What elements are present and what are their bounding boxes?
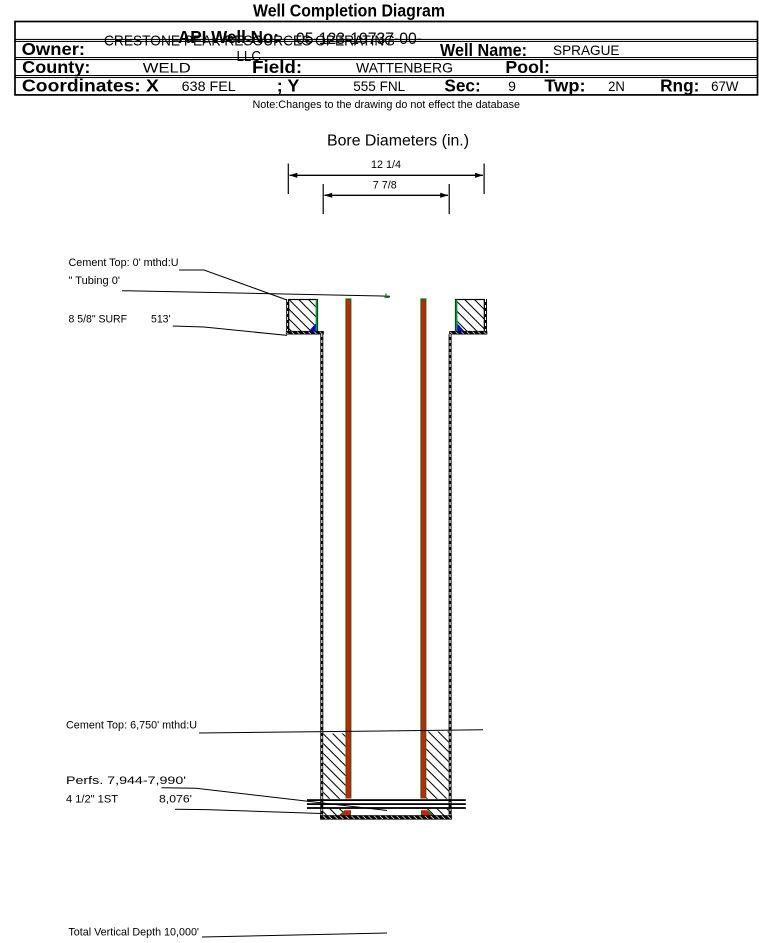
- svg-text:9: 9: [508, 78, 516, 94]
- svg-text:513': 513': [151, 313, 171, 325]
- svg-text:8,076': 8,076': [159, 793, 192, 805]
- svg-text:Owner:: Owner:: [22, 39, 85, 59]
- svg-text:WATTENBERG: WATTENBERG: [356, 59, 453, 75]
- svg-text:555 FNL: 555 FNL: [353, 78, 405, 94]
- svg-text:Pool:: Pool:: [505, 57, 550, 77]
- svg-text:WELD: WELD: [143, 59, 191, 75]
- svg-text:Note:Changes to the drawing do: Note:Changes to the drawing do not effec…: [253, 99, 521, 111]
- svg-text:Bore Diameters (in.): Bore Diameters (in.): [327, 133, 469, 150]
- svg-text:67W: 67W: [711, 78, 739, 94]
- svg-text:CRESTONE PEAK RESOURCES OPERAT: CRESTONE PEAK RESOURCES OPERATING: [104, 34, 395, 50]
- svg-text:4 1/2" 1ST: 4 1/2" 1ST: [66, 793, 118, 805]
- svg-text:Twp:: Twp:: [544, 76, 585, 96]
- svg-text:Coordinates: X: Coordinates: X: [22, 76, 159, 96]
- svg-text:8 5/8" SURF: 8 5/8" SURF: [69, 313, 128, 325]
- svg-text:638 FEL: 638 FEL: [182, 78, 236, 94]
- svg-text:Cement Top: 6,750' mthd:U: Cement Top: 6,750' mthd:U: [66, 720, 197, 732]
- svg-text:Field:: Field:: [252, 57, 302, 77]
- svg-text:SPRAGUE: SPRAGUE: [553, 42, 620, 58]
- svg-text:" Tubing 0': " Tubing 0': [69, 275, 121, 287]
- svg-text:Perfs. 7,944-7,990': Perfs. 7,944-7,990': [66, 775, 186, 787]
- svg-text:County:: County:: [22, 57, 90, 77]
- svg-text:Sec:: Sec:: [444, 76, 480, 96]
- svg-text:2N: 2N: [608, 78, 625, 94]
- svg-text:12 1/4: 12 1/4: [371, 159, 401, 171]
- svg-text:Total Vertical Depth 10,000': Total Vertical Depth 10,000': [68, 926, 199, 938]
- svg-text:Rng:: Rng:: [660, 76, 699, 96]
- svg-text:Cement Top: 0' mthd:U: Cement Top: 0' mthd:U: [69, 257, 179, 269]
- svg-text:7 7/8: 7 7/8: [373, 179, 397, 191]
- svg-text:; Y: ; Y: [277, 76, 300, 96]
- svg-text:Well Completion Diagram: Well Completion Diagram: [253, 1, 445, 21]
